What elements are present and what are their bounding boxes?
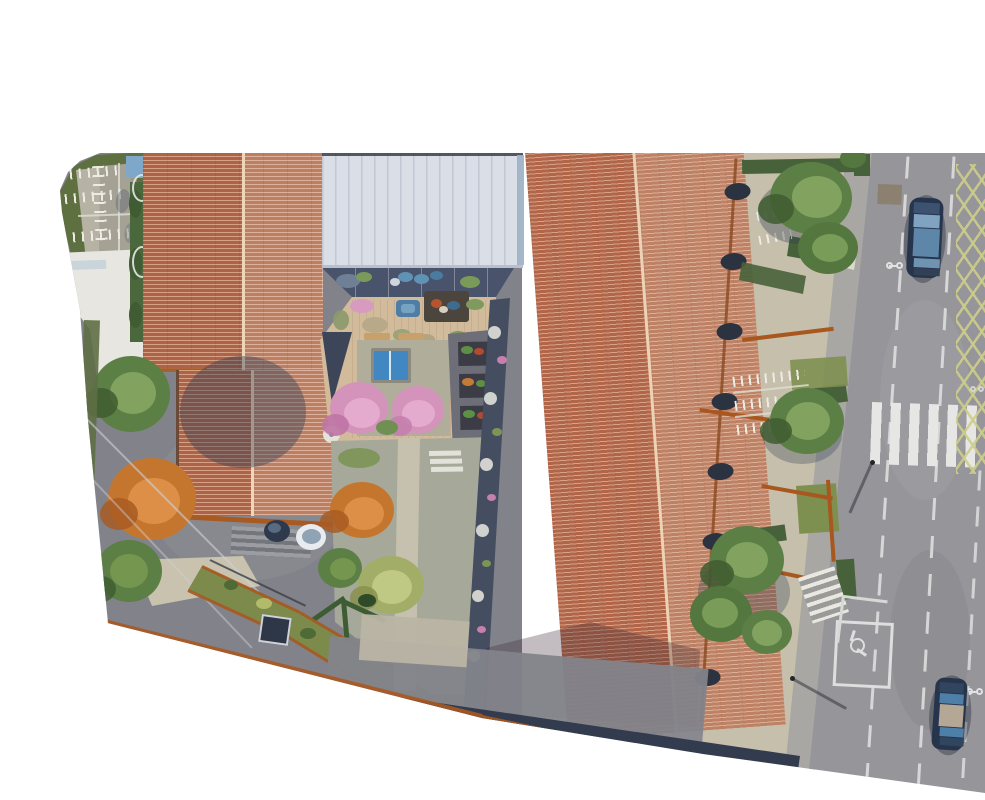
pink-tree-highlight <box>344 398 380 428</box>
skylight-dome-glass <box>302 529 321 544</box>
balcony-plant <box>477 626 486 633</box>
tree-highlight <box>786 402 830 440</box>
tree-highlight <box>752 620 782 646</box>
bike-lane-symbol-bar <box>889 265 898 267</box>
deck-daybed-cushion <box>401 304 415 313</box>
balcony-plant <box>482 560 491 567</box>
garden-step <box>429 450 461 456</box>
car-rear-window <box>939 727 964 738</box>
terrace-lounge-chair <box>398 272 413 282</box>
car-roof <box>913 228 940 257</box>
car-roof <box>938 704 963 728</box>
tree-highlight <box>702 598 738 628</box>
bed-plants <box>474 348 484 355</box>
pergola-table <box>439 306 448 313</box>
skylight-dome-glint <box>268 523 281 533</box>
water-table-divider <box>389 351 391 380</box>
deck-shrub <box>466 299 484 310</box>
car-hood <box>939 682 964 694</box>
terrace-table <box>390 278 400 286</box>
bed-plants <box>462 378 474 386</box>
water-table <box>374 351 408 380</box>
autumn-tree-shade <box>100 498 138 530</box>
terrace-lounge-chair <box>414 274 429 284</box>
tree-highlight <box>110 554 148 588</box>
deck-shrub <box>362 317 388 333</box>
balcony-plant <box>487 494 496 501</box>
yellow-chevron-marking <box>956 164 985 474</box>
shrub <box>376 420 398 435</box>
ramp-plant <box>256 598 272 609</box>
car-hood <box>913 202 940 214</box>
bed-plants <box>463 410 475 418</box>
balcony-table <box>472 590 484 602</box>
utility-kiosk <box>258 614 292 646</box>
autumn-tree-shade <box>320 510 349 533</box>
site-render-area <box>0 0 985 800</box>
ramp-plant <box>300 628 316 639</box>
bike-lane-symbol-bar <box>969 691 978 693</box>
palm-crown <box>358 594 376 607</box>
terrace-plant <box>356 272 372 282</box>
bench <box>398 333 424 340</box>
balcony-table <box>484 392 497 405</box>
south-path <box>359 614 470 667</box>
balcony-plant <box>492 428 502 436</box>
tree-shade <box>86 576 116 602</box>
car-trunk <box>939 737 963 747</box>
tree-canopy <box>840 148 866 168</box>
terrace-lounge-chair <box>430 271 443 280</box>
pergola-chair <box>447 301 460 310</box>
garden-hedge <box>338 448 380 468</box>
green-tree-highlight <box>330 558 356 580</box>
balcony-plant <box>497 356 507 364</box>
tree-highlight <box>812 234 848 262</box>
autumn-tree-highlight <box>344 497 384 530</box>
bed-plants <box>461 346 473 354</box>
ramp-plant <box>224 580 238 590</box>
hedge-bush <box>129 302 142 328</box>
pink-tree-shade <box>322 414 349 436</box>
balcony-table <box>480 458 493 471</box>
tree-shadow <box>180 356 306 468</box>
car-rear-window <box>914 258 940 268</box>
utility-cover <box>877 184 902 205</box>
metal-roof-top-edge <box>322 152 523 156</box>
tree-shade <box>760 418 792 444</box>
balcony-table <box>476 524 489 537</box>
terrace-plant <box>460 276 480 288</box>
bike-lane-symbol <box>970 386 976 392</box>
tree-shade <box>758 194 794 224</box>
roof-west-tile-columns <box>143 152 323 370</box>
metal-roof-right-edge <box>517 155 524 265</box>
tree-shade <box>700 560 734 588</box>
garden-step <box>430 458 462 464</box>
garden-step <box>431 466 463 472</box>
car-trunk <box>914 268 940 276</box>
bike-lane-symbol <box>978 386 984 392</box>
flower-planter <box>350 299 374 313</box>
bench <box>364 333 390 340</box>
metal-roof-seams <box>322 152 523 268</box>
car-windshield <box>939 693 964 705</box>
balcony-table <box>488 326 501 339</box>
tree-highlight <box>792 176 842 218</box>
lime-tree-highlight <box>372 570 412 604</box>
car-windshield <box>913 214 940 228</box>
site-plan-rendering <box>0 0 985 800</box>
deck-shrub <box>333 310 349 330</box>
